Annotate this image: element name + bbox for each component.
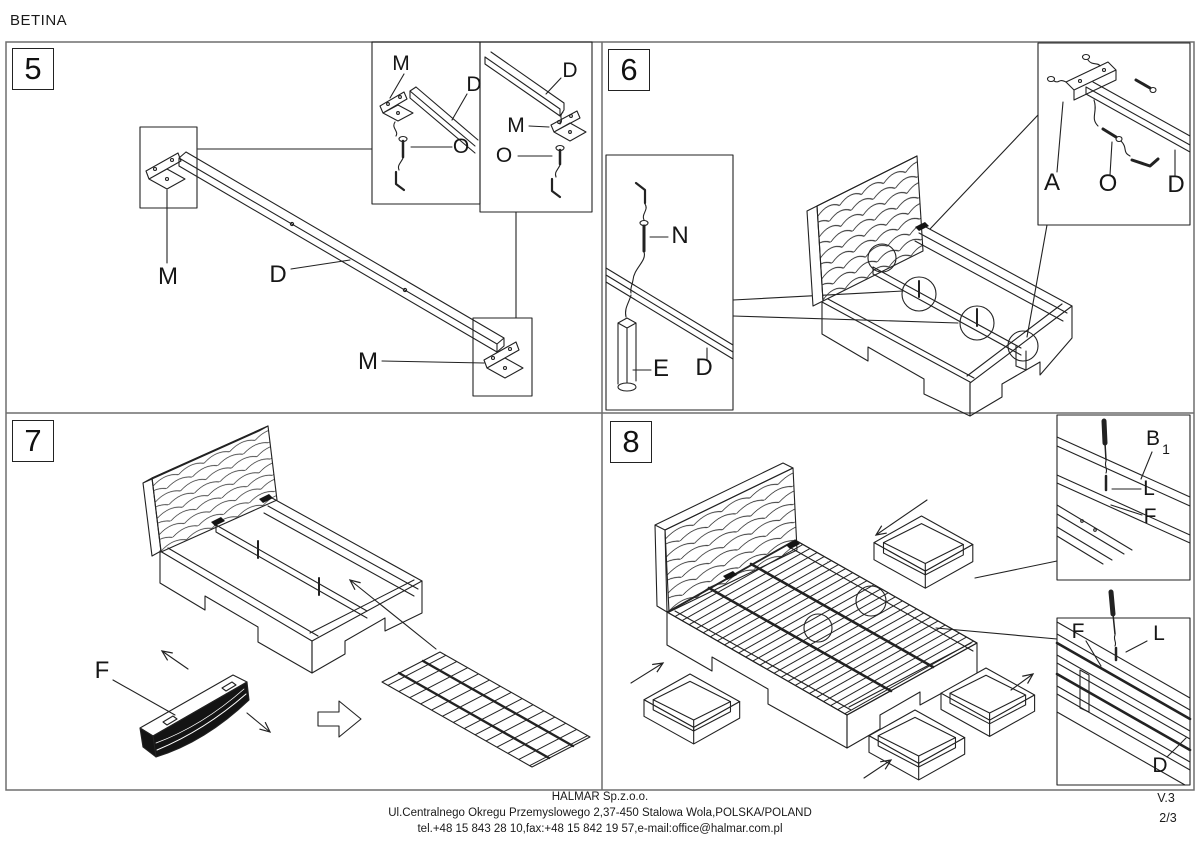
part-label-rail-b: B	[1146, 427, 1160, 451]
part-label-screw-l-bottom: L	[1153, 622, 1165, 646]
part-label-bracket-m: M	[158, 263, 178, 291]
part-label-screw-l-top: L	[1143, 477, 1155, 501]
part-label-screw-n: N	[671, 222, 688, 250]
step-number-7: 7	[12, 420, 54, 462]
inset2-label-d: D	[562, 59, 577, 83]
part-label-beam-d: D	[269, 261, 286, 289]
footer-address: Ul.Centralnego Okregu Przemyslowego 2,37…	[388, 807, 812, 819]
part-label-slat-f-top: F	[1144, 505, 1157, 529]
part-label-slat-f-bottom: F	[1072, 620, 1085, 644]
footer-contact: tel.+48 15 843 28 10,fax:+48 15 842 19 5…	[417, 823, 782, 835]
inset2-label-m: M	[507, 114, 525, 138]
part-label-rail-b-sub: 1	[1162, 441, 1170, 457]
part-label-slats-f: F	[95, 657, 110, 685]
step6-drawing	[606, 43, 1190, 416]
step8-drawing	[631, 415, 1190, 785]
inset1-label-m: M	[392, 52, 410, 76]
part-label-beam-d6b: D	[1167, 171, 1184, 199]
diagram-art	[0, 0, 1200, 848]
part-label-leg-e: E	[653, 355, 669, 383]
instruction-sheet: BETINA 5 6 7 8 M D M M D O D M O N E D A…	[0, 0, 1200, 848]
step5-drawing	[140, 42, 592, 396]
step-number-6: 6	[608, 49, 650, 91]
document-title: BETINA	[10, 12, 67, 29]
inset2-label-o: O	[496, 144, 512, 168]
part-label-beam-d6: D	[695, 354, 712, 382]
part-label-headboard-a: A	[1044, 169, 1060, 197]
footer-version: V.3	[1157, 791, 1175, 805]
step-number-8: 8	[610, 421, 652, 463]
inset1-label-d: D	[466, 73, 481, 97]
part-label-beam-d8: D	[1152, 754, 1167, 778]
step7-drawing	[113, 426, 590, 767]
inset1-label-o: O	[453, 135, 469, 159]
part-label-screw-o: O	[1099, 170, 1118, 198]
footer-page-number: 2/3	[1159, 811, 1176, 825]
footer-company: HALMAR Sp.z.o.o.	[552, 791, 649, 803]
part-label-bracket-m2: M	[358, 348, 378, 376]
step-number-5: 5	[12, 48, 54, 90]
